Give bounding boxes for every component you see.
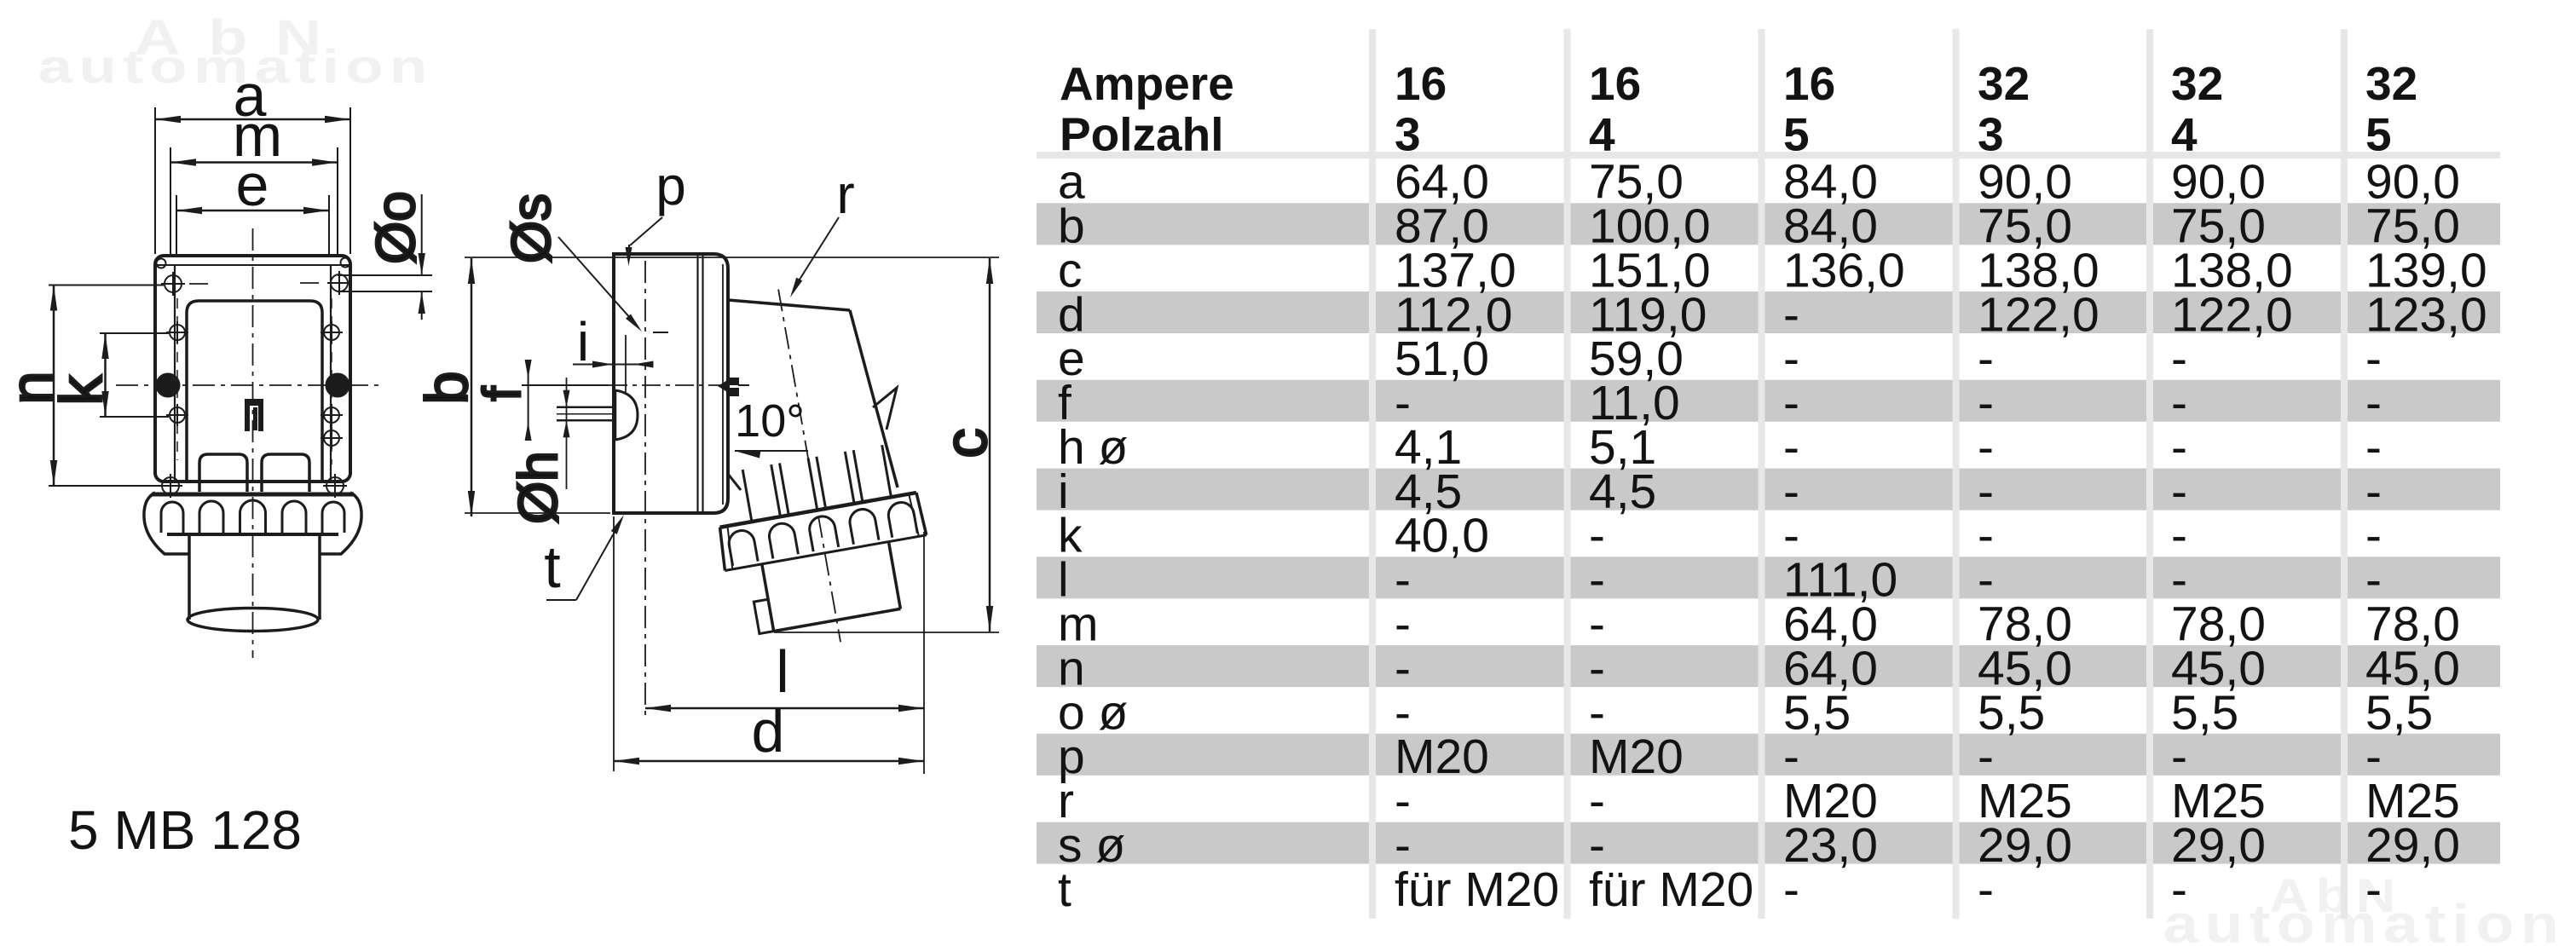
svg-text:f: f bbox=[473, 386, 532, 401]
svg-text:4: 4 bbox=[2171, 108, 2198, 161]
svg-text:-: - bbox=[1978, 862, 1994, 917]
svg-text:136,0: 136,0 bbox=[1783, 244, 1905, 298]
svg-text:3: 3 bbox=[1395, 108, 1421, 161]
svg-text:-: - bbox=[2365, 862, 2382, 917]
svg-text:16: 16 bbox=[1589, 57, 1641, 110]
svg-text:i: i bbox=[577, 311, 589, 372]
svg-text:t: t bbox=[544, 534, 560, 600]
svg-text:5: 5 bbox=[1783, 108, 1810, 161]
svg-text:-: - bbox=[2171, 862, 2187, 917]
svg-text:4: 4 bbox=[1589, 108, 1615, 161]
svg-text:r: r bbox=[836, 164, 854, 225]
svg-text:-: - bbox=[1783, 862, 1799, 917]
svg-text:5: 5 bbox=[2365, 108, 2392, 161]
svg-text:122,0: 122,0 bbox=[2171, 287, 2293, 342]
svg-text:5 MB 128: 5 MB 128 bbox=[68, 799, 302, 861]
svg-text:Øh: Øh bbox=[507, 451, 569, 523]
svg-text:10°: 10° bbox=[735, 395, 805, 447]
svg-text:automation: automation bbox=[2163, 893, 2565, 946]
svg-text:t: t bbox=[1058, 862, 1071, 917]
svg-text:Polzahl: Polzahl bbox=[1060, 108, 1224, 161]
svg-text:3: 3 bbox=[1978, 108, 2004, 161]
svg-text:für M20: für M20 bbox=[1589, 862, 1753, 917]
svg-text:Ampere: Ampere bbox=[1060, 57, 1234, 110]
svg-text:d: d bbox=[752, 698, 785, 764]
svg-text:b: b bbox=[413, 372, 480, 405]
svg-text:32: 32 bbox=[2171, 57, 2223, 110]
svg-text:für M20: für M20 bbox=[1395, 862, 1559, 917]
svg-text:Øo: Øo bbox=[365, 191, 426, 263]
svg-text:16: 16 bbox=[1783, 57, 1835, 110]
svg-text:32: 32 bbox=[1978, 57, 2030, 110]
svg-text:32: 32 bbox=[2365, 57, 2417, 110]
svg-text:122,0: 122,0 bbox=[1978, 287, 2099, 342]
svg-text:123,0: 123,0 bbox=[2365, 287, 2487, 342]
svg-text:p: p bbox=[656, 155, 686, 216]
svg-text:16: 16 bbox=[1395, 57, 1447, 110]
svg-text:e: e bbox=[236, 152, 269, 218]
svg-text:Øs: Øs bbox=[500, 193, 562, 263]
svg-text:l: l bbox=[776, 638, 789, 705]
